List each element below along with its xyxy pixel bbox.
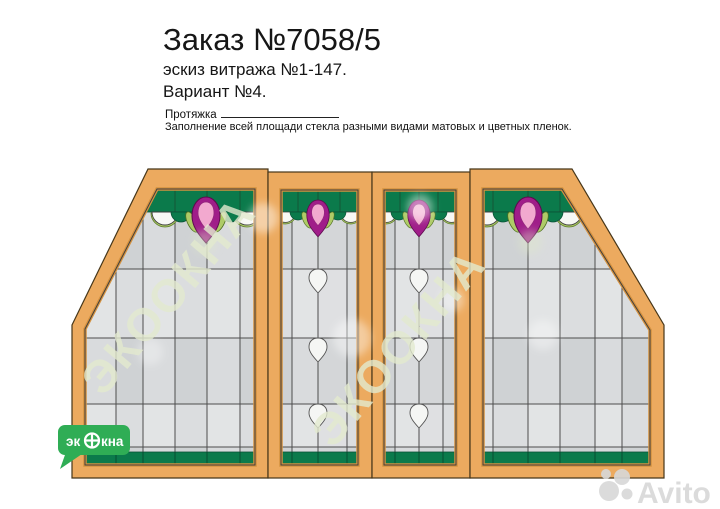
bottom-green-band — [281, 452, 358, 465]
order-sketch-page: Заказ №7058/5 эскиз витража №1-147. Вари… — [0, 0, 720, 509]
glass-right — [473, 189, 650, 465]
stained-glass-sketch: ЭКООКНА ЭКООКНА эк кна Avito — [0, 0, 720, 509]
window-circle-icon — [85, 434, 99, 448]
logo-text-part1: эк — [66, 434, 80, 449]
avito-logo-icon — [599, 469, 633, 501]
bottom-green-band — [483, 452, 650, 465]
section-right-trapezoid — [470, 169, 664, 478]
logo-text-part2: кна — [101, 434, 124, 449]
avito-text: Avito — [637, 477, 711, 509]
